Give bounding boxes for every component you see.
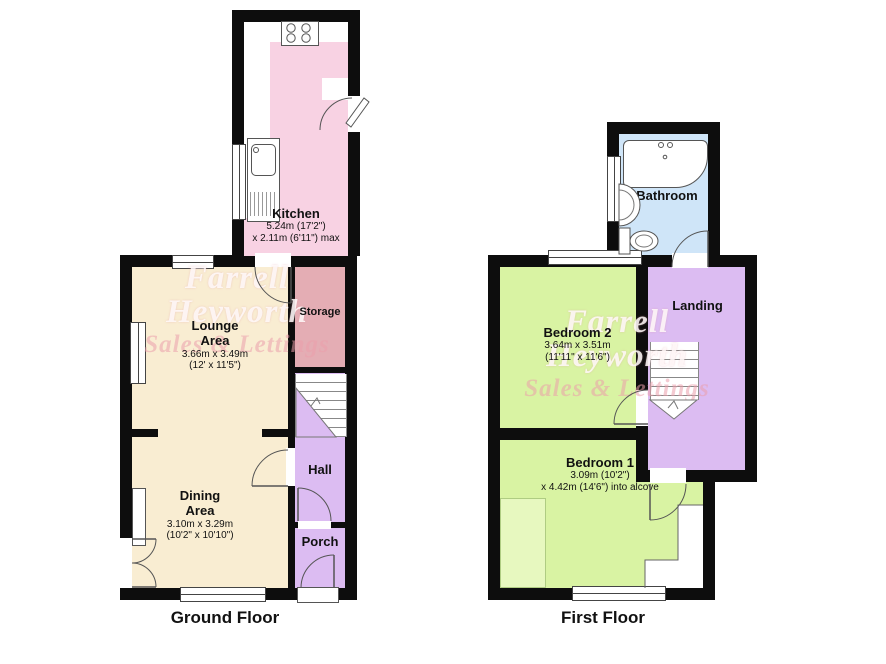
kitchen-label: Kitchen 5.24m (17'2") x 2.11m (6'11") ma… <box>236 206 356 245</box>
dining-label: Dining Area 3.10m x 3.29m (10'2" x 10'10… <box>135 488 265 542</box>
dining-dim2: (10'2" x 10'10") <box>135 530 265 542</box>
bedroom1-furniture <box>500 498 546 588</box>
dining-window <box>180 587 266 602</box>
bedroom1-label: Bedroom 1 3.09m (10'2") x 4.42m (14'6") … <box>495 455 705 494</box>
ground-floor-label: Ground Floor <box>100 608 350 628</box>
lounge-label: Lounge Area 3.66m x 3.49m (12' x 11'5") <box>150 318 280 372</box>
bedroom1-dim1: 3.09m (10'2") <box>495 470 705 482</box>
bedroom2-name: Bedroom 2 <box>505 325 650 340</box>
bedroom1-name: Bedroom 1 <box>495 455 705 470</box>
kitchen-name: Kitchen <box>236 206 356 221</box>
bedroom2-label: Bedroom 2 3.64m x 3.51m (11'11" x 11'6") <box>505 325 650 364</box>
stove <box>281 21 319 46</box>
floorplan-canvas: Farrell Heyworth Sales & Lettings Farrel… <box>0 0 886 664</box>
landing-label: Landing <box>650 298 745 313</box>
bedroom2-dim2: (11'11" x 11'6") <box>505 352 650 364</box>
hall-name: Hall <box>293 462 347 477</box>
bedroom1-alcove-lower <box>645 560 703 588</box>
lounge-dining-wall-stub-right <box>262 429 288 437</box>
lounge-name1: Lounge <box>150 318 280 333</box>
storage-name: Storage <box>293 306 347 319</box>
ground-stairs <box>295 374 347 437</box>
bedroom2-window <box>548 250 642 265</box>
bedroom1-window <box>572 586 666 601</box>
first-floor-label: First Floor <box>488 608 718 628</box>
lounge-side-window <box>130 322 146 384</box>
bathroom-door-gap <box>672 253 708 268</box>
dining-name1: Dining <box>135 488 265 503</box>
bedroom2-dim1: 3.64m x 3.51m <box>505 340 650 352</box>
kitchen-dim1: 5.24m (17'2") <box>236 221 356 233</box>
hall-porch-door-gap <box>298 521 331 529</box>
sink-bowl <box>251 144 276 176</box>
lounge-dining-wall-stub-left <box>132 429 158 437</box>
bedroom1-dim2: x 4.42m (14'6") into alcove <box>495 482 705 494</box>
bedroom2-door-gap <box>636 390 648 426</box>
lounge-name2: Area <box>150 333 280 348</box>
kitchen-dim2: x 2.11m (6'11") max <box>236 233 356 245</box>
lounge-dim1: 3.66m x 3.49m <box>150 349 280 361</box>
bathtub <box>623 140 708 188</box>
kitchen-back-door-gap <box>348 96 360 132</box>
bathroom-label: Bathroom <box>612 188 722 203</box>
first-floor-stairs <box>650 342 699 400</box>
dining-name2: Area <box>135 503 265 518</box>
hall-label: Hall <box>293 462 347 477</box>
storage-label: Storage <box>293 306 347 319</box>
landing-name: Landing <box>650 298 745 313</box>
kitchen-counter-notch <box>322 78 348 100</box>
porch-label: Porch <box>293 534 347 549</box>
kitchen-lounge-door-gap <box>255 253 291 267</box>
porch-name: Porch <box>293 534 347 549</box>
dining-french-door-gap <box>120 538 132 588</box>
lounge-rear-window <box>172 255 214 269</box>
lounge-dim2: (12' x 11'5") <box>150 360 280 372</box>
front-door-threshold <box>297 587 339 603</box>
bathroom-name: Bathroom <box>612 188 722 203</box>
dining-dim1: 3.10m x 3.29m <box>135 519 265 531</box>
